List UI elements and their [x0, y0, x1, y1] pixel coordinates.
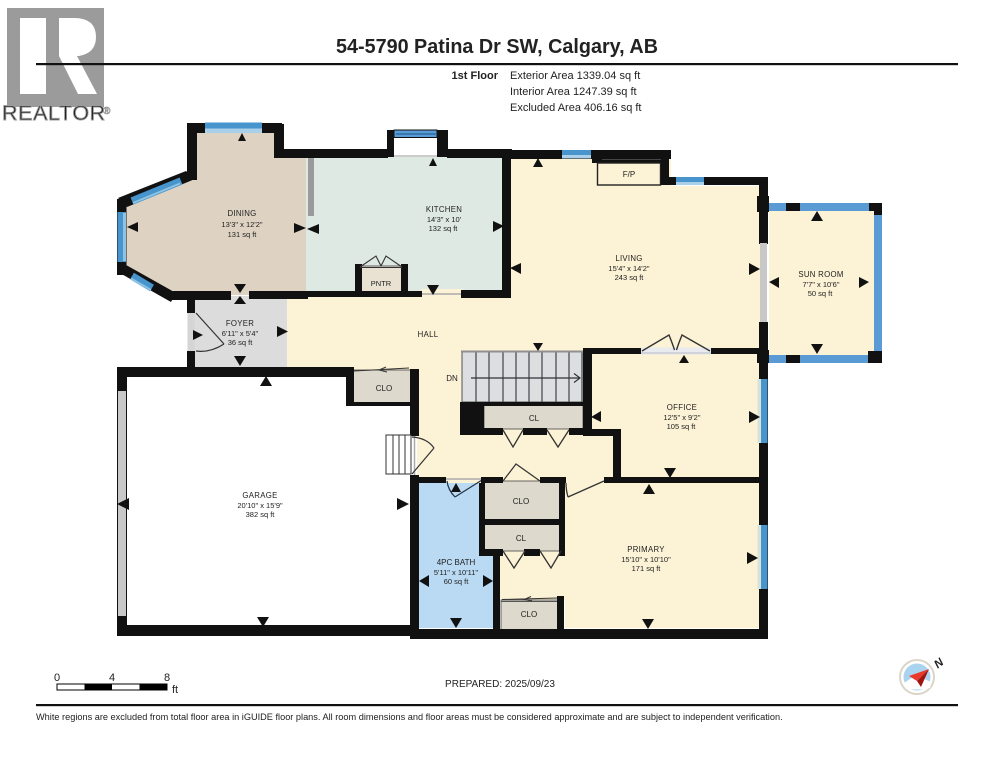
svg-text:15'10" x 10'10": 15'10" x 10'10" [621, 555, 671, 564]
svg-text:OFFICE: OFFICE [667, 403, 697, 412]
svg-text:Interior Area 1247.39 sq ft: Interior Area 1247.39 sq ft [510, 86, 637, 98]
svg-text:CLO: CLO [376, 384, 392, 393]
svg-text:Exterior Area 1339.04 sq ft: Exterior Area 1339.04 sq ft [510, 70, 640, 82]
svg-text:PRIMARY: PRIMARY [627, 545, 665, 554]
svg-text:5'11" x 10'11": 5'11" x 10'11" [434, 568, 479, 577]
svg-text:0: 0 [54, 672, 60, 684]
svg-text:7'7" x 10'6": 7'7" x 10'6" [803, 280, 840, 289]
svg-text:DN: DN [446, 374, 458, 383]
svg-text:CLO: CLO [513, 497, 529, 506]
svg-text:54-5790 Patina Dr SW, Calgary,: 54-5790 Patina Dr SW, Calgary, AB [336, 35, 658, 58]
svg-text:ft: ft [172, 684, 178, 696]
svg-text:REALTOR: REALTOR [2, 101, 106, 125]
svg-text:36 sq ft: 36 sq ft [228, 338, 254, 347]
svg-text:®: ® [103, 106, 111, 117]
svg-text:Excluded Area 406.16 sq ft: Excluded Area 406.16 sq ft [510, 102, 641, 114]
svg-text:PREPARED: 2025/09/23: PREPARED: 2025/09/23 [445, 679, 555, 690]
svg-text:CL: CL [516, 534, 527, 543]
svg-text:1st Floor: 1st Floor [452, 70, 499, 82]
svg-text:4: 4 [109, 672, 115, 684]
svg-text:LIVING: LIVING [615, 254, 642, 263]
svg-text:171 sq ft: 171 sq ft [632, 564, 662, 573]
svg-text:12'5" x 9'2": 12'5" x 9'2" [664, 413, 701, 422]
svg-text:382 sq ft: 382 sq ft [246, 510, 276, 519]
svg-text:CL: CL [529, 414, 540, 423]
svg-text:F/P: F/P [623, 170, 635, 179]
svg-text:15'4" x 14'2": 15'4" x 14'2" [608, 264, 649, 273]
svg-text:4PC BATH: 4PC BATH [437, 558, 476, 567]
svg-text:131 sq ft: 131 sq ft [228, 230, 258, 239]
svg-text:132 sq ft: 132 sq ft [429, 224, 459, 233]
svg-text:White regions are excluded fro: White regions are excluded from total fl… [36, 712, 783, 722]
svg-text:13'3" x 12'2": 13'3" x 12'2" [221, 220, 262, 229]
svg-text:DINING: DINING [227, 209, 256, 218]
svg-text:KITCHEN: KITCHEN [426, 205, 462, 214]
svg-text:50 sq ft: 50 sq ft [808, 289, 834, 298]
svg-text:8: 8 [164, 672, 170, 684]
svg-text:HALL: HALL [418, 330, 439, 339]
svg-text:CLO: CLO [521, 610, 537, 619]
svg-text:20'10" x 15'9": 20'10" x 15'9" [237, 501, 283, 510]
svg-text:SUN ROOM: SUN ROOM [798, 270, 843, 279]
svg-text:14'3" x 10': 14'3" x 10' [427, 215, 462, 224]
svg-text:GARAGE: GARAGE [242, 491, 277, 500]
svg-text:105 sq ft: 105 sq ft [667, 422, 697, 431]
svg-text:60 sq ft: 60 sq ft [444, 577, 470, 586]
svg-text:FOYER: FOYER [226, 319, 254, 328]
svg-text:243 sq ft: 243 sq ft [615, 273, 645, 282]
svg-text:6'11" x 5'4": 6'11" x 5'4" [222, 329, 259, 338]
svg-text:PNTR: PNTR [371, 279, 392, 288]
